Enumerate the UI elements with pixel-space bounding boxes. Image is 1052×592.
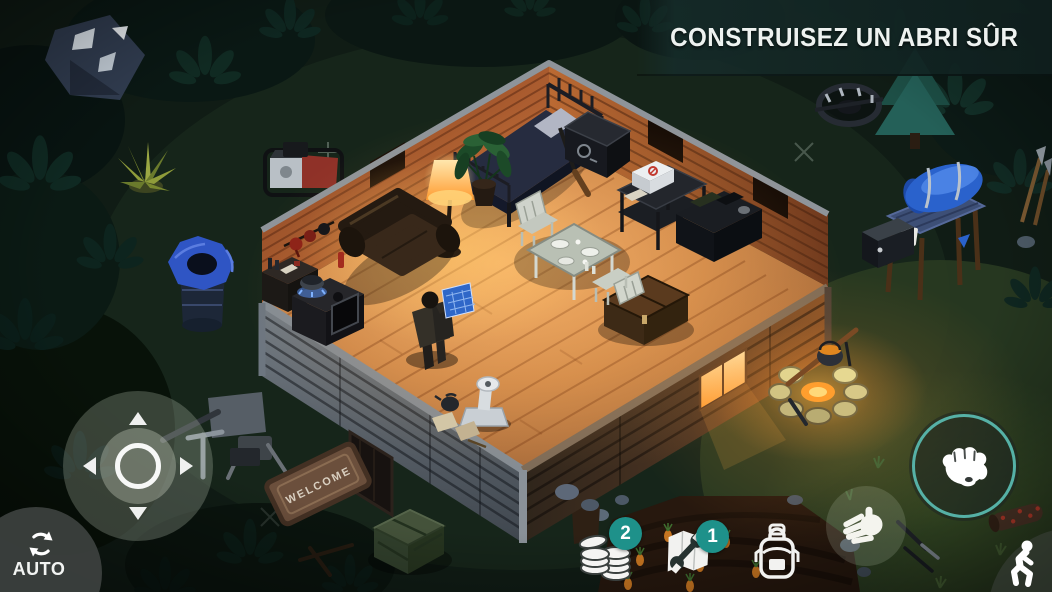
attack-punch-button[interactable] bbox=[909, 411, 1019, 521]
joystick-center-ring bbox=[115, 443, 161, 489]
tutorial-banner: CONSTRUISEZ UN ABRI SÛR bbox=[637, 0, 1052, 76]
interact-hand-button[interactable] bbox=[826, 486, 906, 566]
movement-joystick[interactable] bbox=[63, 391, 213, 541]
crouch-person-icon bbox=[1002, 538, 1042, 590]
joystick-left-arrow bbox=[83, 457, 96, 475]
quickbar-backpack[interactable] bbox=[752, 522, 804, 586]
joystick-down-arrow bbox=[129, 507, 147, 520]
punch-ring bbox=[912, 414, 1016, 518]
joystick-right-arrow bbox=[180, 457, 193, 475]
quickbar-resources[interactable]: 2 bbox=[578, 520, 638, 588]
auto-label: AUTO bbox=[0, 559, 108, 580]
backpack-icon bbox=[752, 522, 802, 584]
joystick-up-arrow bbox=[129, 412, 147, 425]
quickbar-craft[interactable]: 1 bbox=[664, 524, 720, 588]
resources-count-badge: 2 bbox=[609, 517, 642, 550]
tutorial-banner-title: CONSTRUISEZ UN ABRI SÛR bbox=[670, 22, 1018, 53]
refresh-icon bbox=[25, 528, 57, 560]
craft-count-badge: 1 bbox=[696, 520, 729, 553]
game-screen: WELCOME bbox=[0, 0, 1052, 592]
hand-icon bbox=[838, 498, 894, 554]
